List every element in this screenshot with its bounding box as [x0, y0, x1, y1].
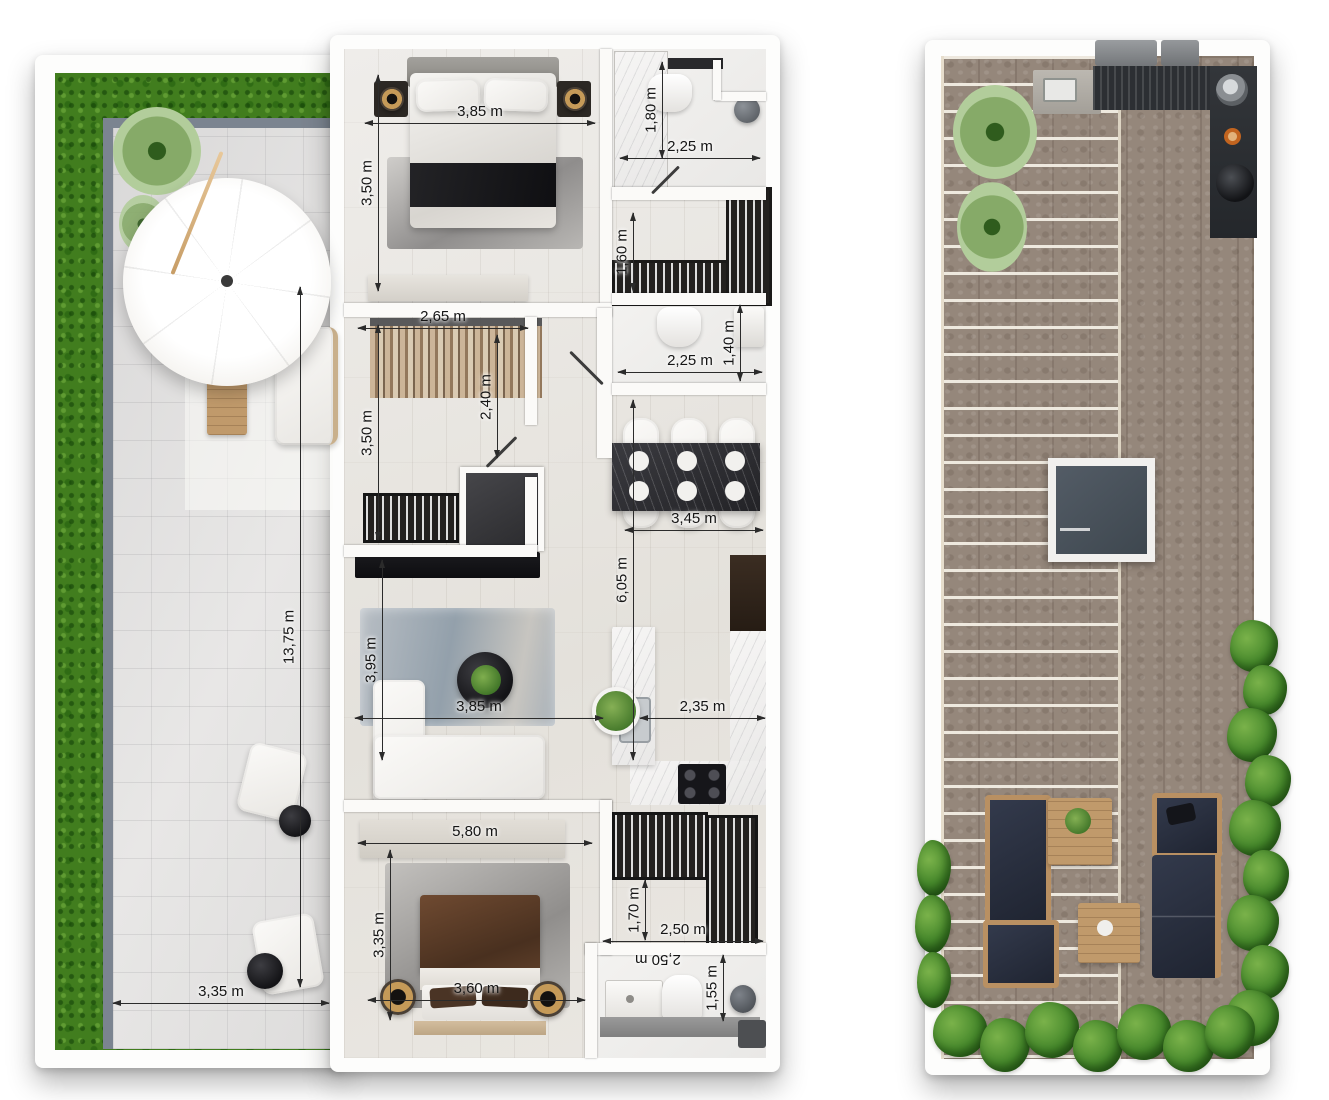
wall [612, 293, 766, 305]
wall [585, 943, 597, 1058]
dim-bedroom2-depth: 3,35 m [390, 850, 391, 1020]
shower-fixture [738, 1020, 766, 1048]
hedge-shrub [1227, 708, 1277, 762]
bedroom1-dresser [368, 275, 528, 301]
plant-icon [1065, 808, 1091, 834]
plate-icon [677, 481, 697, 501]
bed2-bench [414, 1021, 546, 1035]
dim-terrace-width: 3,35 m [113, 1003, 329, 1004]
deck-sofa [1152, 855, 1221, 978]
rooftop-equipment-box [1161, 40, 1199, 66]
dim-bathroom3-width: 2,50 m [603, 941, 763, 942]
wall [715, 92, 766, 101]
dim-living-kitchen-length: 6,05 m [633, 400, 634, 760]
bath1-shower [614, 51, 668, 189]
bed1-throw [410, 163, 556, 207]
wall [600, 800, 612, 955]
rooftop-plant-icon [957, 182, 1027, 272]
dim-terrace-length: 13,75 m [300, 287, 301, 987]
wall [713, 60, 721, 100]
stove-icon [678, 764, 726, 804]
dim-bathroom1-depth: 1,80 m [662, 62, 663, 158]
dim-bed2-width: 3,60 m [368, 1000, 585, 1001]
dim-bathroom1-width: 2,25 m [620, 158, 760, 159]
dim-bathroom3-width-rotated: 2,50 m [635, 951, 681, 968]
sun-lounger [985, 795, 1051, 927]
plate-icon [725, 481, 745, 501]
wall [344, 303, 612, 317]
dim-dressing-depth: 3,50 m [378, 325, 379, 540]
dim-dressing-inner-depth: 2,40 m [497, 335, 498, 458]
rooftop-plan-frame [925, 40, 1270, 1075]
lamp-icon [380, 87, 404, 111]
toilet-icon [657, 307, 701, 347]
plate-icon [725, 451, 745, 471]
skylight [1048, 458, 1155, 562]
lamp-icon [530, 981, 566, 1017]
dim-kitchen-width: 2,35 m [640, 718, 765, 719]
hedge-shrub [1229, 800, 1281, 856]
grill-burner-icon [1216, 74, 1248, 106]
wok-burner-icon [1216, 164, 1254, 202]
wall [344, 800, 612, 812]
closet-unit [612, 812, 708, 880]
lamp-icon [563, 87, 587, 111]
hall-wardrobe [726, 187, 772, 306]
burner-icon [1224, 128, 1241, 145]
bed2-duvet [420, 895, 540, 972]
rooftop-equipment-box [1095, 40, 1157, 66]
hedge-shrub [980, 1018, 1030, 1072]
sofa [373, 735, 545, 799]
lamp-icon [380, 979, 416, 1015]
hedge-shrub [1230, 620, 1278, 672]
skylight-ladder [1060, 528, 1090, 531]
closet-unit [706, 815, 758, 947]
sink-icon [1043, 78, 1077, 102]
wall [344, 545, 537, 557]
wall [612, 187, 766, 200]
dim-bathroom3-depth: 1,55 m [723, 955, 724, 1021]
shower-tray [600, 1017, 760, 1037]
sink-icon [734, 307, 764, 347]
toilet-icon [662, 975, 702, 1020]
dim-closet-depth: 1,70 m [645, 880, 646, 940]
dim-living-width: 3,85 m [355, 718, 603, 719]
dim-dressing-width: 2,65 m [358, 328, 528, 329]
wall [612, 383, 766, 395]
terrace-plan-frame: 13,75 m 3,35 m [35, 55, 345, 1068]
apartment-plan-frame: 3,85 m 3,50 m 1,80 m 2,25 m 1,60 m 2,25 … [330, 35, 780, 1072]
dim-hall-closet-depth: 1,60 m [633, 213, 634, 291]
wall [525, 317, 537, 425]
umbrella-hub [221, 275, 233, 287]
dim-dining-width: 3,45 m [625, 530, 763, 531]
dim-bathroom2-depth: 1,40 m [740, 305, 741, 381]
dressing-wardrobe [370, 318, 542, 398]
terrace-round-table [279, 805, 311, 837]
palm-plant-icon [113, 107, 201, 195]
hedge-shrub [1227, 895, 1279, 951]
pendant-lamp-icon [730, 985, 756, 1013]
terrace-round-table [247, 953, 283, 989]
dim-bedroom1-depth: 3,50 m [378, 75, 379, 291]
vanity-unit [605, 980, 663, 1022]
dim-living-depth: 3,95 m [382, 560, 383, 760]
plate-icon [629, 481, 649, 501]
plate-icon [629, 451, 649, 471]
kitchen-cabinet [730, 555, 766, 631]
rooftop-plant-icon [953, 85, 1037, 179]
hedge-shrub [1073, 1020, 1123, 1072]
deck-chair [983, 920, 1059, 988]
vanity-knob [626, 995, 634, 1003]
plate-icon [677, 451, 697, 471]
wall [600, 49, 612, 303]
dim-bedroom2-width: 5,80 m [358, 843, 592, 844]
plant-icon [471, 665, 501, 695]
floor-plan-canvas: 13,75 m 3,35 m [0, 0, 1329, 1100]
dim-bedroom1-width: 3,85 m [365, 123, 595, 124]
tray-icon [1097, 920, 1113, 936]
